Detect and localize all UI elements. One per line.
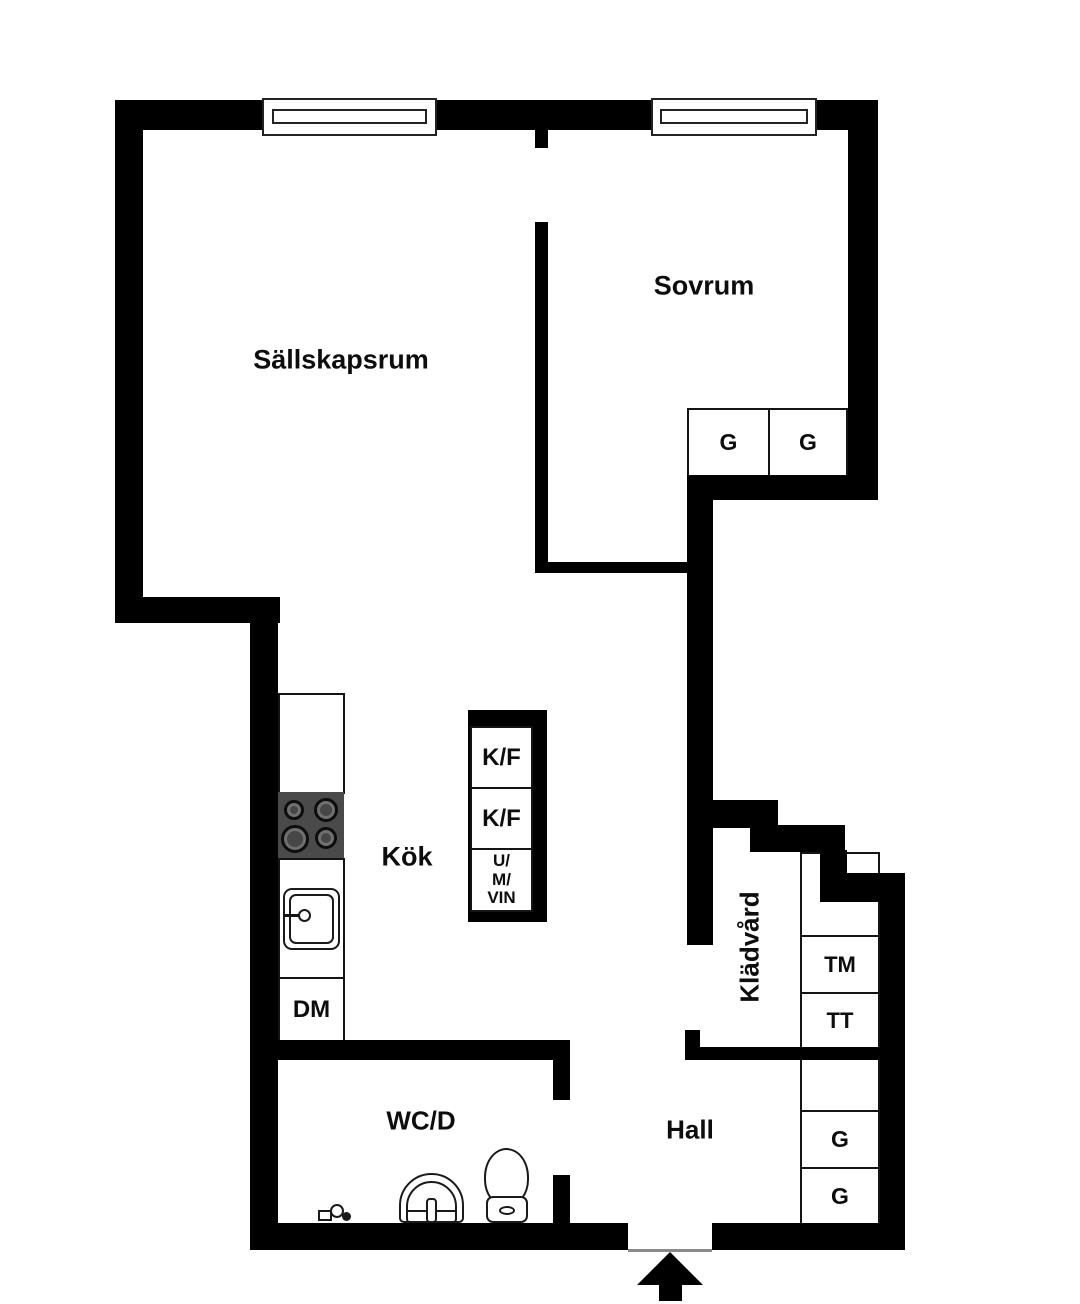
- tumble-dryer-cell: TT: [800, 992, 880, 1049]
- stove-top: [278, 792, 344, 858]
- wall-segment: [250, 1040, 570, 1060]
- wall-segment: [685, 1047, 880, 1060]
- kitchen-counter-cell: [278, 693, 345, 794]
- wardrobe-label: G: [799, 429, 817, 456]
- toilet-flush-button: [499, 1206, 515, 1215]
- wall-segment: [712, 800, 778, 828]
- burner-icon: [315, 827, 337, 849]
- hall-wardrobe-label: G: [831, 1183, 849, 1210]
- wall-segment: [848, 100, 878, 500]
- burner-icon: [281, 825, 309, 853]
- washing-machine-label: TM: [824, 952, 856, 978]
- entrance-arrow: [637, 1252, 703, 1285]
- burner-icon: [284, 800, 304, 820]
- wardrobe-cell: G: [768, 408, 848, 477]
- wall-segment: [687, 475, 878, 500]
- oven-micro-wine-label: U/ M/ VIN: [487, 852, 515, 908]
- wall-segment: [535, 222, 548, 562]
- washing-machine-cell: TM: [800, 935, 880, 994]
- room-label-kitchen: Kök: [381, 842, 432, 873]
- window: [262, 98, 437, 136]
- sink-basin: [289, 894, 334, 944]
- hall-shelf-cell: [800, 1058, 880, 1112]
- wall-segment: [880, 873, 905, 1250]
- room-label-bathroom: WC/D: [386, 1106, 455, 1137]
- washbasin-faucet: [426, 1198, 437, 1223]
- wall-segment: [435, 100, 653, 130]
- entrance-arrow-stem: [659, 1283, 682, 1301]
- wall-segment: [820, 850, 847, 902]
- dishwasher-cell: DM: [278, 977, 345, 1042]
- wall-segment: [250, 1223, 628, 1250]
- fridge-freezer-label: K/F: [482, 744, 521, 772]
- wall-segment: [250, 623, 278, 1250]
- window-glazing: [660, 109, 808, 124]
- wall-segment: [553, 1175, 570, 1223]
- wall-segment: [535, 562, 688, 573]
- room-label-living: Sällskapsrum: [253, 345, 429, 376]
- oven-micro-wine-cell: U/ M/ VIN: [470, 848, 533, 912]
- dishwasher-label: DM: [293, 996, 330, 1024]
- window: [651, 98, 817, 136]
- burner-icon: [314, 798, 338, 822]
- fridge-freezer-label: K/F: [482, 805, 521, 833]
- tumble-dryer-label: TT: [827, 1008, 854, 1034]
- room-label-hall: Hall: [666, 1115, 714, 1146]
- wall-segment: [535, 130, 548, 148]
- wall-segment: [712, 1223, 905, 1250]
- floor-plan: G G DM K/F K/F U/ M/ VIN TM TT G G: [0, 0, 1080, 1304]
- hall-wardrobe-label: G: [831, 1126, 849, 1153]
- hall-wardrobe-cell: G: [800, 1167, 880, 1225]
- wall-segment: [553, 1040, 570, 1100]
- floor-drain-icon: [318, 1210, 332, 1221]
- hall-wardrobe-cell: G: [800, 1110, 880, 1169]
- wardrobe-label: G: [720, 429, 738, 456]
- wall-segment: [750, 825, 845, 852]
- wall-segment: [115, 100, 143, 623]
- fridge-freezer-cell: K/F: [470, 726, 533, 789]
- sink-faucet-knob: [298, 909, 311, 922]
- room-label-bedroom: Sovrum: [654, 271, 755, 302]
- wardrobe-cell: G: [687, 408, 770, 477]
- fridge-freezer-cell: K/F: [470, 787, 533, 850]
- window-glazing: [272, 109, 427, 124]
- room-label-laundry: Klädvård: [735, 891, 766, 1002]
- floor-drain-icon: [342, 1212, 351, 1221]
- wall-segment: [115, 597, 280, 623]
- wall-segment: [687, 475, 713, 945]
